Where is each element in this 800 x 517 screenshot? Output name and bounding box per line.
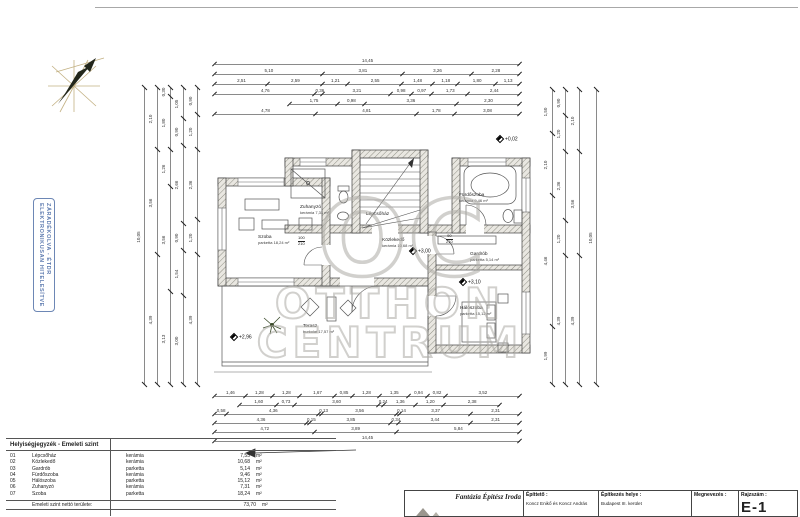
title-block-number-cell: Rajzszám : E-1 [738,491,797,516]
total-label: Emeleti szint nettó területe: [6,501,176,509]
dimension-value: 4,39 [556,316,561,325]
door-width: 100 [298,236,305,241]
dimension-value: 2,36 [188,181,193,190]
dimension-segment: 4,76 [215,86,315,95]
dimension-segment: 1,48 [402,76,433,85]
dimension-segment: 0,90 [175,224,184,251]
dimension-value: 0,85 [335,390,353,395]
dimension-segment: 2,10 [571,90,580,152]
dimension-segment: 4,39 [571,256,580,385]
dimension-value: 3,81 [323,68,403,73]
dimension-segment: 1,67 [300,388,335,397]
dimension-value: 5,84 [397,426,520,431]
dimension-value: 3,56 [148,198,153,207]
dimension-segment: 3,56 [149,150,158,255]
dimension-value: 1,20 [188,233,193,242]
title-block-company-cell: Fantázia Építész Iroda [405,491,523,516]
dimension-segment: 1,80 [458,76,496,85]
stamp-line: ZÁRADÉKOLVA - ÉTDR [44,203,51,307]
dimension-value: 1,73 [432,88,469,93]
dimension-segment: 4,72 [215,424,315,433]
dimension-segment: 4,39 [557,256,566,385]
dimension-value: 0,94 [409,390,429,395]
dimension-value: 2,44 [468,88,520,93]
dimension-chain-right: 0,901,202,361,204,39 [557,90,565,385]
dimension-value: 14,45 [215,58,520,63]
dimension-value: 4,78 [215,108,316,113]
dimension-segment: 4,81 [316,106,418,115]
dimension-segment: 5,10 [215,66,323,75]
dimension-value: 1,36 [384,399,416,404]
dimension-value: 4,39 [148,316,153,325]
dimension-value: 4,36 [215,417,307,422]
dimension-value: 1,80 [161,119,166,128]
dimension-segment: 2,59 [268,76,323,85]
dimension-segment: 1,20 [557,221,566,256]
dimension-value: 2,10 [543,160,548,169]
room-name: Lépcsőház [366,212,389,217]
drawing-name-label: Megnevezés : [694,492,736,498]
dimension-value: 1,05 [174,99,179,108]
dimension-segment: 1,20 [416,397,444,406]
dimension-value: 1,60 [240,399,277,404]
dimension-value: 3,56 [322,408,397,413]
dimension-chain-top: 4,784,811,783,08 [215,106,520,114]
dimension-value: 1,78 [417,108,455,113]
dimension-value: 3,52 [446,390,520,395]
dimension-segment: 4,39 [149,255,158,385]
dimension-value: 3,00 [174,336,179,345]
dimension-segment: 4,39 [189,255,198,385]
title-block-client-cell: Építtető : Koncz Enikő és Koncz András [523,491,598,516]
dimension-segment: 3,44 [399,415,472,424]
room-schedule-title: Helyiségjegyzék - Emeleti szint [6,439,336,451]
dimension-segment: 2,44 [468,86,520,95]
room-schedule-table: Helyiségjegyzék - Emeleti szint 01 Lépcs… [6,438,336,516]
room-schedule-rows: 01 Lépcsőház kerámia 7,55 m² 02 Közleked… [6,453,336,497]
site-value: Budapest III. kerület [601,501,689,506]
dimension-value: 0,90 [174,233,179,242]
dimension-segment: 1,20 [189,220,198,255]
dimension-segment: 1,46 [215,388,246,397]
dimension-value: 1,26 [161,164,166,173]
dimension-chain-bottom: 0,584,360,133,560,143,372,31 [215,406,520,414]
watermark-word-otthon: OTTHON [240,286,540,322]
dimension-value: 4,46 [543,257,548,266]
table-divider [110,439,111,516]
dimension-segment: 1,28 [273,388,300,397]
dimension-value: 1,18 [433,78,458,83]
dimension-value: 0,98 [338,98,365,103]
dimension-segment: 1,05 [175,88,184,119]
dimension-value: 1,35 [380,390,409,395]
room-label-haloszoba: Hálószoba parketta 15,12 m² [460,306,491,316]
room-label-kozlekedo: Közlekedő kerámia 10,68 m² [382,238,413,248]
dimension-chain-left: 0,901,202,361,204,39 [189,88,197,385]
dimension-segment: 3,52 [446,388,520,397]
dimension-segment: 3,85 [310,415,391,424]
dimension-chain-top: 2,512,591,212,551,481,181,801,13 [215,76,520,84]
room-label-terasz: Terasz burkolat 17,57 m² [303,324,334,334]
level-value: +2,96 [239,334,252,340]
room-area: parketta 5,14 m² [470,257,499,262]
door-swings [304,205,486,316]
north-arrow-icon [48,58,104,112]
dimension-value: 3,89 [315,426,397,431]
dimension-segment: 2,31 [471,406,520,415]
dimension-segment: 1,13 [496,76,520,85]
level-value: +3,10 [468,279,481,285]
dimension-segment: 5,84 [397,424,520,433]
dimension-value: 3,60 [295,399,379,404]
room-unit: m² [250,491,282,497]
dimension-value: 2,36 [556,182,561,191]
dimension-segment: 2,10 [149,88,158,150]
room-area: kerámia 7,31 m² [300,210,329,215]
dimension-value: 0,82 [428,390,445,395]
dimension-segment: 10,05 [136,88,145,385]
dimension-segment: 0,98 [391,86,412,95]
dimension-chain-left: 2,103,564,39 [149,88,157,385]
dimension-segment: 10,05 [588,90,597,385]
dimension-segment: 1,21 [323,76,349,85]
dimension-value: 2,31 [471,417,520,422]
dimension-chain-top: 1,750,983,362,30 [290,96,520,104]
dimension-value: 2,30 [457,98,520,103]
dimension-chain-top: 4,760,363,210,980,971,732,44 [215,86,520,94]
dimension-segment: 2,36 [557,152,566,221]
level-mark-bedroom: +3,10 [460,279,481,285]
dimension-segment: 1,35 [380,388,409,397]
dimension-chain-bottom: 1,600,733,600,241,361,202,38 [240,397,500,405]
dimension-value: 1,67 [300,390,335,395]
dimension-value: 1,80 [458,78,496,83]
watermark-word-centrum: CENTRUM [240,325,540,361]
dimension-value: 2,51 [215,78,268,83]
dimension-value: 2,55 [348,78,402,83]
dimension-value: 1,20 [188,128,193,137]
dimension-value: 10,05 [136,231,141,242]
dimension-segment: 1,73 [432,86,469,95]
table-row: 07 Szoba parketta 18,24 m² [6,491,336,497]
dimension-value: 1,20 [416,399,444,404]
dimension-value: 3,36 [365,98,457,103]
door-size-label: 100 210 [298,236,305,246]
dimension-value: 2,10 [570,116,575,125]
dimension-value: 1,20 [556,130,561,139]
dimension-segment: 3,56 [162,187,171,292]
dimension-value: 2,31 [471,408,520,413]
dimension-segment: 1,78 [417,106,455,115]
company-logo-icon [427,512,445,516]
level-value: +0,02 [505,136,518,142]
dimension-value: 1,28 [273,390,300,395]
architectural-drawing-sheet: { "stamp": {"line1": "ELEKTRONIKUSAN HIT… [0,0,800,515]
dimension-segment: 4,78 [215,106,316,115]
dimension-segment: 4,36 [227,406,319,415]
dimension-value: 1,21 [323,78,349,83]
dimension-value: 3,56 [161,235,166,244]
dimension-segment: 4,46 [544,196,553,327]
dimension-value: 2,38 [444,399,500,404]
dimension-chain-left-total: 10,05 [136,88,144,385]
dimension-value: 1,28 [246,390,273,395]
dimension-value: 4,39 [570,316,575,325]
dimension-value: 1,28 [353,390,380,395]
room-label-furdoszoba: Fürdőszoba kerámia 9,46 m² [459,193,488,203]
room-material: parketta [110,491,192,497]
room-name: Szoba [32,491,110,497]
dimension-segment: 3,60 [295,397,379,406]
dimension-segment: 1,36 [384,397,416,406]
level-mark-terrace: +2,96 [231,334,252,340]
dimension-value: 2,66 [174,181,179,190]
room-label-gardrob: Gardrób parketta 5,14 m² [470,252,499,262]
dimension-value: 4,76 [215,88,315,93]
dimension-value: 3,56 [570,200,575,209]
room-label-szoba: Szoba parketta 18,24 m² [258,235,289,245]
company-name: Fantázia Építész Iroda [407,492,521,501]
dimension-segment: 3,81 [323,66,403,75]
dimension-chain-right-total: 10,05 [588,90,596,385]
dimension-segment: 3,21 [323,86,391,95]
room-label-zuhanyzo: Zuhanyzó kerámia 7,31 m² [300,205,329,215]
dimension-value: 4,39 [188,316,193,325]
dimension-value: 3,26 [403,68,472,73]
dimension-segment: 2,28 [472,66,520,75]
dimension-segment: 3,56 [322,406,397,415]
dimension-segment: 1,20 [189,115,198,150]
drawing-number-label: Rajzszám : [741,492,795,498]
room-area: burkolat 17,57 m² [303,329,334,334]
dimension-segment: 2,36 [189,150,198,220]
dimension-value: 0,97 [412,88,432,93]
dimension-value: 10,05 [588,232,593,243]
dimension-value: 1,48 [402,78,433,83]
stamp-line: ELEKTRONIKUSAN HITELESÍTVE [37,203,44,307]
dimension-value: 1,75 [290,98,338,103]
room-area: parketta 15,12 m² [460,311,491,316]
dimension-chain-right: 2,103,564,39 [571,90,579,385]
dimension-value: 2,28 [472,68,520,73]
dimension-value: 4,72 [215,426,315,431]
dimension-segment: 2,51 [215,76,268,85]
dimension-value: 1,20 [556,234,561,243]
dimension-value: 3,44 [399,417,472,422]
dimension-chain-bottom: 4,723,895,84 [215,424,520,432]
dimension-segment: 0,97 [412,86,432,95]
total-value: 73,70 [176,501,256,509]
dimension-segment: 1,18 [433,76,458,85]
room-number: 07 [6,491,32,497]
dimension-segment: 3,36 [365,96,457,105]
dimension-segment: 0,82 [428,388,445,397]
dimension-value: 3,13 [161,334,166,343]
dimension-value: 1,46 [215,390,246,395]
dimension-value: 3,21 [323,88,391,93]
dimension-segment: 2,55 [348,76,402,85]
dimension-chain-left: 1,050,902,660,901,543,00 [175,88,183,385]
door-height: 210 [446,239,453,245]
dimension-segment: 3,13 [162,292,171,385]
dimension-value: 1,54 [174,269,179,278]
dimension-segment: 2,30 [457,96,520,105]
room-area: kerámia 10,68 m² [382,243,413,248]
dimension-segment: 1,60 [240,397,277,406]
dimension-value: 0,98 [391,88,412,93]
client-label: Építtető : [526,492,596,498]
dimension-value: 3,08 [455,108,520,113]
dimension-segment: 3,89 [315,424,397,433]
staircase [360,158,420,228]
dimension-chain-bottom: 4,360,153,850,343,442,31 [215,415,520,423]
dimension-segment: 1,26 [162,150,171,187]
dimension-segment: 3,00 [175,296,184,385]
title-block-site-cell: Építkezés helye : Budapest III. kerület [598,491,691,516]
dimension-segment: 2,31 [471,415,520,424]
dimension-segment: 1,28 [353,388,380,397]
dimension-segment: 0,90 [175,119,184,146]
etdr-validation-stamp: ELEKTRONIKUSAN HITELESÍTVE ZÁRADÉKOLVA -… [33,198,55,312]
dimension-value: 4,36 [227,408,319,413]
door-width: 90 [446,234,453,239]
dimension-chain-top: 5,103,813,262,28 [215,66,520,74]
dimension-segment: 3,56 [571,152,580,257]
dimension-value: 5,10 [215,68,323,73]
dimension-value: 1,13 [496,78,520,83]
room-label-lepcsohaz: Lépcsőház [366,212,389,217]
dimension-value: 0,90 [174,128,179,137]
dimension-value: 1,50 [543,108,548,117]
dimension-value: 2,10 [148,115,153,124]
dimension-segment: 1,75 [290,96,338,105]
dimension-segment: 0,90 [557,90,566,116]
total-unit: m² [256,501,288,509]
sheet-border-line [95,7,798,8]
dimension-segment: 3,26 [403,66,472,75]
dimension-segment: 14,45 [215,56,520,65]
door-height: 210 [298,241,305,247]
dimension-segment: 2,38 [444,397,500,406]
dimension-segment: 3,08 [455,106,520,115]
level-mark-hall: +3,00 [410,248,431,254]
dimension-value: 2,59 [268,78,323,83]
site-label: Építkezés helye : [601,492,689,498]
drawing-number-value: E-1 [741,499,795,516]
dimension-value: 4,81 [316,108,418,113]
dimension-segment: 0,90 [189,88,198,115]
level-value: +3,00 [418,248,431,254]
dimension-segment: 4,36 [215,415,307,424]
dimension-segment: 0,73 [277,397,294,406]
dimension-segment: 2,66 [175,146,184,225]
dimension-value: 0,90 [188,97,193,106]
dimension-segment: 3,37 [400,406,471,415]
room-area: parketta 18,24 m² [258,240,289,245]
dimension-value: 3,37 [400,408,471,413]
dimension-chain-bottom: 1,461,281,281,670,851,281,350,940,823,52 [215,388,520,396]
dimension-value: 0,58 [215,408,227,413]
dimension-segment: 1,80 [162,97,171,150]
room-area: kerámia 9,46 m² [459,198,488,203]
title-block-name-cell: Megnevezés : [691,491,738,516]
dimension-segment: 0,98 [338,96,365,105]
dimension-value: 1,99 [543,351,548,360]
table-total-row: Emeleti szint nettó területe: 73,70 m² [6,500,336,510]
dimension-value: 0,30 [161,88,166,97]
dimension-value: 3,85 [310,417,391,422]
title-block: Fantázia Építész Iroda Építtető : Koncz … [404,490,798,517]
dimension-segment: 1,20 [557,116,566,151]
dimension-chain-left: 0,301,801,263,563,13 [162,88,170,385]
dimension-chain-right: 1,502,104,461,99 [544,90,552,385]
dimension-chain-top-total: 14,45 [215,56,520,64]
dimension-value: 0,90 [556,99,561,108]
dimension-value: 0,73 [277,399,294,404]
dimension-segment: 1,28 [246,388,273,397]
dimension-segment: 1,99 [544,327,553,385]
dimension-segment: 2,10 [544,134,553,196]
dimension-segment: 1,54 [175,251,184,297]
dimension-segment: 1,50 [544,90,553,134]
door-size-label: 90 210 [446,234,453,244]
level-mark-entry: +0,02 [497,136,518,142]
client-value: Koncz Enikő és Koncz András [526,501,596,506]
room-area: 18,24 [192,491,250,497]
